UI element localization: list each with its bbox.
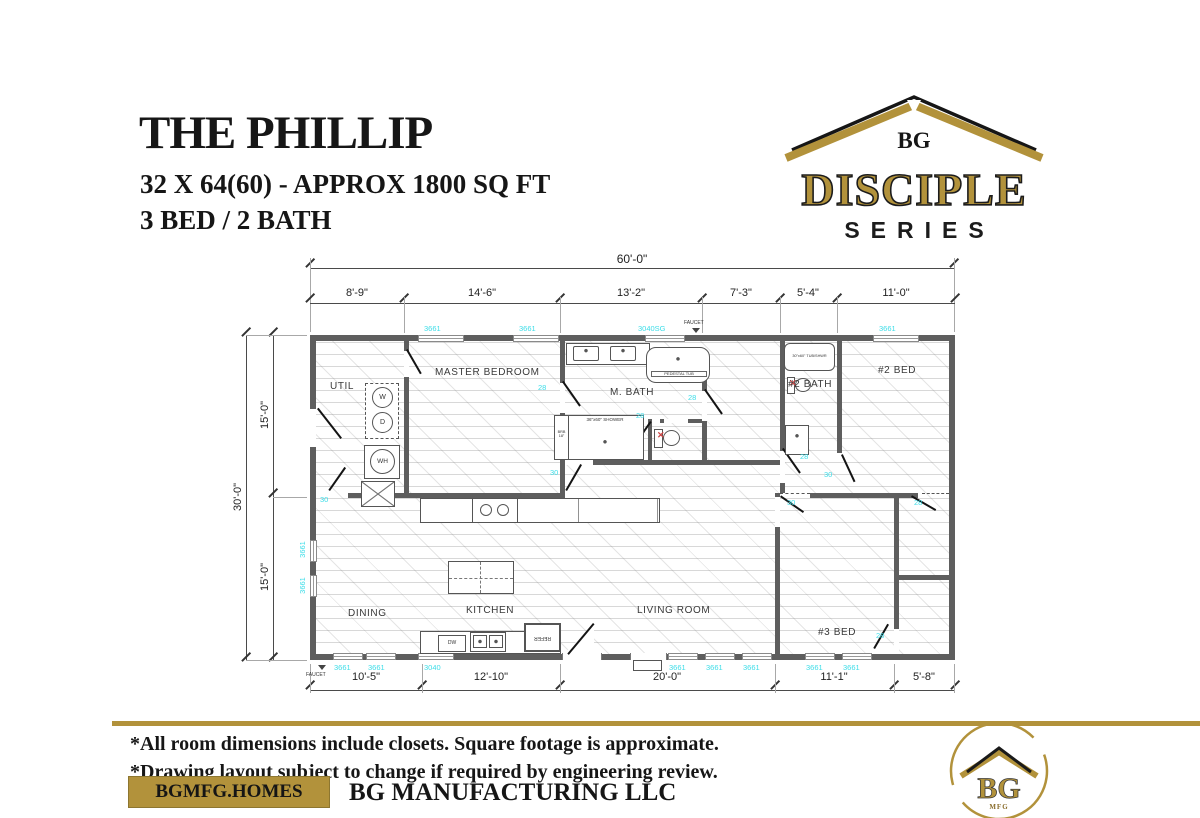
window-tag: 3040SG [638, 324, 666, 333]
badge-sub-text: MFG [989, 803, 1008, 811]
sink-basin [489, 635, 503, 648]
ext-line [404, 297, 405, 333]
window [668, 653, 698, 660]
exterior-wall-right [949, 335, 955, 660]
closet-dash-line [922, 493, 949, 494]
dim-bottom-seg: 12'-10" [471, 671, 511, 683]
window-tag: 3661 [843, 663, 860, 672]
dim-top-seg: 11'-0" [879, 287, 912, 299]
burner-icon [480, 504, 492, 516]
kitchen-counter [420, 498, 660, 523]
room-label-bed3: #3 BED [818, 627, 856, 638]
tub-shower-label: 30"x60" TUB/SHWR [786, 354, 833, 358]
window [873, 335, 919, 342]
dim-line [246, 335, 247, 660]
window [645, 335, 685, 342]
door-tag: 28 [876, 631, 884, 640]
window [742, 653, 772, 660]
series-name: DISCIPLE [778, 167, 1050, 213]
window-tag: 3661 [743, 663, 760, 672]
door-opening [780, 451, 785, 483]
water-heater-icon: WH [370, 449, 395, 474]
dim-bottom-seg: 20'-0" [650, 671, 684, 683]
window [418, 653, 454, 660]
dim-tick [950, 293, 960, 303]
door-tag: 30 [824, 470, 832, 479]
ext-line [894, 664, 895, 693]
faucet-label: FAUCET [684, 320, 704, 326]
window [805, 653, 835, 660]
window [705, 653, 735, 660]
door-opening [775, 497, 780, 527]
room-label-util: UTIL [330, 381, 354, 392]
door-opening [560, 383, 565, 413]
window [333, 653, 363, 660]
series-logo: BG DISCIPLE SERIES [778, 92, 1050, 242]
ext-line [780, 297, 781, 333]
door-step [633, 660, 662, 671]
website-badge: BGMFG.HOMES [128, 776, 330, 808]
interior-wall [810, 493, 918, 498]
dim-left-seg: 15'-0" [259, 398, 271, 432]
side-door-opening [630, 653, 667, 660]
interior-wall [560, 460, 785, 465]
dim-overall-width: 60'-0" [614, 252, 651, 266]
room-label-bath2: #2 BATH [788, 379, 832, 390]
ext-line [954, 664, 955, 693]
footer-note-1: *All room dimensions include closets. Sq… [130, 732, 719, 756]
door-tag: 28 [538, 383, 546, 392]
washer-icon: W [372, 387, 393, 408]
ext-line [246, 660, 307, 661]
burner-icon [497, 504, 509, 516]
ext-line [273, 497, 307, 498]
door-tag: 28 [636, 411, 644, 420]
ext-line [775, 664, 776, 693]
window-tag: 3661 [298, 577, 307, 594]
window-tag: 3661 [879, 324, 896, 333]
bg-mfg-badge: BG MFG [943, 716, 1055, 818]
utility-sink-icon [361, 481, 395, 507]
window [842, 653, 872, 660]
dim-overall-depth: 30'-0" [232, 480, 244, 514]
shower-label: 36"x60" SHOWER [568, 418, 642, 423]
room-label-living: LIVING ROOM [637, 605, 710, 616]
interior-wall [837, 341, 842, 453]
vanity [785, 425, 809, 455]
room-label-bed2: #2 BED [878, 365, 916, 376]
faucet-icon [692, 328, 700, 333]
bed-bath-subtitle: 3 BED / 2 BATH [140, 207, 332, 234]
page-title: THE PHILLIP [139, 110, 432, 157]
door-tag: 28 [914, 498, 922, 507]
sink-icon [610, 346, 636, 361]
window-tag: 3661 [669, 663, 686, 672]
dim-top-seg: 8'-9" [343, 287, 371, 299]
window [513, 335, 559, 342]
interior-wall [894, 575, 949, 580]
cooktop [472, 498, 518, 523]
window [418, 335, 464, 342]
dishwasher: DW [438, 635, 466, 652]
brb-label: BRB 18" [554, 430, 569, 438]
dim-line [310, 268, 955, 269]
dim-bottom-seg: 10'-5" [349, 671, 383, 683]
pedestal-tub-label: PEDESTAL TUB [651, 371, 707, 377]
door-tag: 28 [800, 452, 808, 461]
exterior-wall-left [310, 335, 316, 660]
window-tag: 3661 [424, 324, 441, 333]
window [310, 540, 317, 562]
door-tag: 30 [320, 495, 328, 504]
faucet-label: FAUCET [306, 672, 326, 678]
door-tag: 28 [688, 393, 696, 402]
dim-bottom-seg: 5'-8" [910, 671, 938, 683]
company-name: BG MANUFACTURING LLC [349, 780, 676, 805]
sink-icon [573, 346, 599, 361]
faucet-icon [318, 665, 326, 670]
ext-line [246, 335, 307, 336]
window [310, 575, 317, 597]
room-label-master: MASTER BEDROOM [435, 367, 540, 378]
dryer-icon: D [372, 412, 393, 433]
toilet-mark: ✕ [657, 430, 665, 441]
room-label-kitchen: KITCHEN [466, 605, 514, 616]
dim-line [310, 690, 955, 691]
window-tag: 3661 [706, 663, 723, 672]
door-opening [664, 419, 688, 423]
refrigerator: REFER [524, 623, 561, 652]
toilet-icon [663, 430, 680, 446]
dim-left-seg: 15'-0" [259, 560, 271, 594]
island-divider [449, 578, 513, 579]
sink-basin [473, 635, 487, 648]
window [366, 653, 396, 660]
door-tag: 30 [550, 468, 558, 477]
ext-line [560, 297, 561, 333]
dim-top-seg: 13'-2" [614, 287, 648, 299]
interior-wall [894, 493, 899, 630]
door-tag: 30 [787, 498, 795, 507]
logo-brand-text: BG [897, 128, 930, 153]
ext-line [310, 664, 311, 693]
door-opening [702, 391, 707, 421]
ext-line [702, 297, 703, 333]
dim-top-seg: 14'-6" [465, 287, 499, 299]
dim-top-seg: 5'-4" [794, 287, 822, 299]
room-label-dining: DINING [348, 608, 387, 619]
dim-tick [950, 680, 960, 690]
dim-top-seg: 7'-3" [727, 287, 755, 299]
dim-bottom-seg: 11'-1" [817, 671, 850, 683]
dim-line [310, 303, 955, 304]
ext-line [560, 664, 561, 693]
closet-dash-line [780, 493, 810, 494]
window-tag: 3661 [334, 663, 351, 672]
window-tag: 3661 [298, 541, 307, 558]
roof-icon: BG [778, 92, 1050, 162]
ext-line [837, 297, 838, 333]
series-word: SERIES [778, 219, 1050, 242]
badge-brand-text: BG [977, 772, 1020, 805]
window-tag: 3661 [806, 663, 823, 672]
window-tag: 3661 [519, 324, 536, 333]
floor-plan: W D WH PEDESTAL TUB 36"x60" SHOWER BRB 1… [310, 335, 955, 660]
window-tag: 3040 [424, 663, 441, 672]
window-tag: 3661 [368, 663, 385, 672]
model-size-subtitle: 32 X 64(60) - APPROX 1800 SQ FT [140, 171, 550, 198]
door-opening [310, 409, 316, 447]
door-opening [894, 629, 899, 654]
room-label-mbath: M. BATH [610, 387, 654, 398]
pedestal-tub [646, 347, 710, 383]
ext-line [422, 664, 423, 693]
